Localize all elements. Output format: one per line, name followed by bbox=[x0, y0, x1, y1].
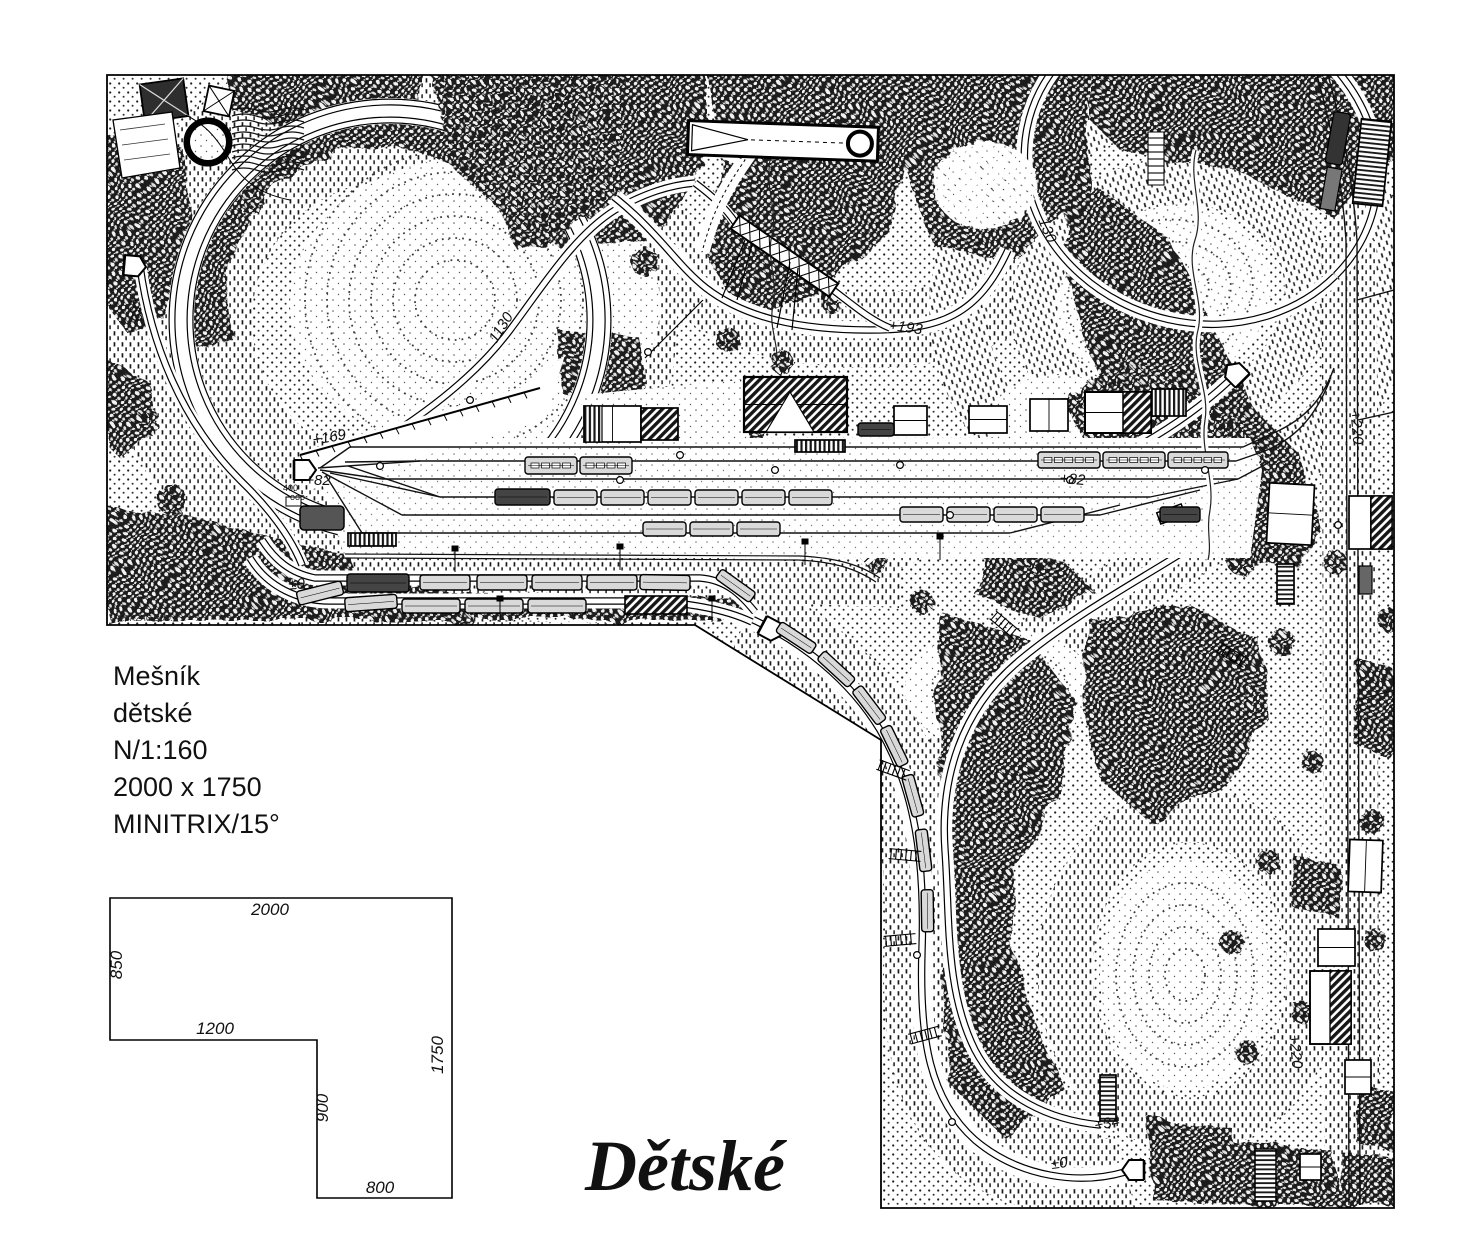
svg-text:N/1:160: N/1:160 bbox=[113, 735, 208, 765]
svg-text:+220: +220 bbox=[1286, 1034, 1306, 1070]
svg-text:2000 x 1750: 2000 x 1750 bbox=[113, 772, 262, 802]
svg-text:400: 400 bbox=[283, 483, 298, 493]
svg-text:+82: +82 bbox=[305, 472, 331, 489]
svg-text:S.BRZAĆ BUD.: S.BRZAĆ BUD. bbox=[117, 614, 173, 623]
svg-text:1750: 1750 bbox=[428, 1036, 447, 1074]
svg-text:Dětské: Dětské bbox=[584, 1126, 787, 1206]
svg-text:±0: ±0 bbox=[288, 575, 306, 593]
svg-text:ooo: ooo bbox=[290, 492, 305, 502]
svg-text:900: 900 bbox=[313, 1093, 332, 1122]
svg-text:2000: 2000 bbox=[250, 900, 289, 919]
svg-text:850: 850 bbox=[107, 950, 126, 979]
svg-text:800: 800 bbox=[366, 1178, 395, 1197]
svg-text:Mešník: Mešník bbox=[113, 661, 201, 691]
svg-text:+82: +82 bbox=[1059, 470, 1086, 489]
svg-text:MINITRIX/15°: MINITRIX/15° bbox=[113, 809, 280, 839]
svg-text:dětské: dětské bbox=[113, 698, 193, 728]
svg-text:+220: +220 bbox=[1347, 410, 1367, 446]
svg-text:±0: ±0 bbox=[1050, 1154, 1069, 1173]
svg-text:1200: 1200 bbox=[196, 1019, 234, 1038]
